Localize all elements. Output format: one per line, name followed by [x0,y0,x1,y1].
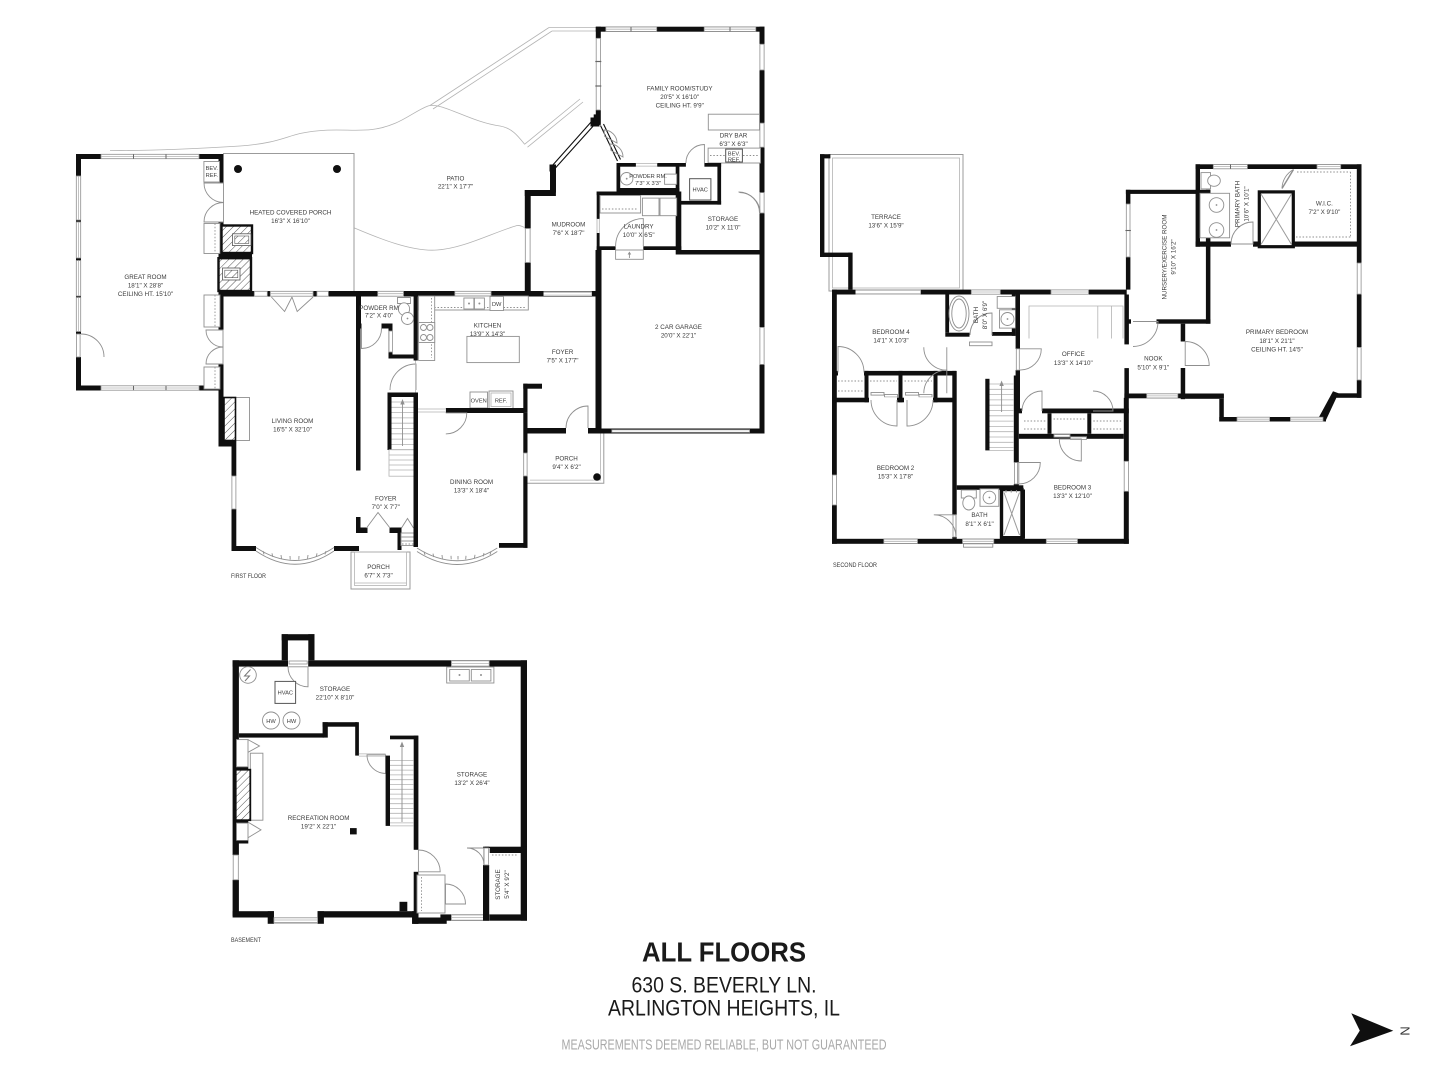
svg-text:7'2" X 4'0": 7'2" X 4'0" [365,313,393,320]
svg-text:REF.: REF. [495,399,508,405]
svg-text:13'3" X 18'4": 13'3" X 18'4" [454,488,489,495]
svg-text:POWDER RM.: POWDER RM. [629,174,667,180]
svg-text:HVAC: HVAC [278,691,293,697]
svg-text:CEILING HT. 15'10": CEILING HT. 15'10" [118,291,173,298]
svg-text:GREAT ROOM: GREAT ROOM [124,274,166,281]
svg-text:HW: HW [287,719,297,725]
svg-text:BASEMENT: BASEMENT [231,937,261,944]
svg-text:N: N [1398,1026,1413,1035]
svg-text:13'6" X 15'9": 13'6" X 15'9" [868,223,903,230]
svg-text:BATH: BATH [973,307,980,323]
svg-text:7'6" X 18'7": 7'6" X 18'7" [553,230,585,237]
svg-text:POWDER RM: POWDER RM [359,305,399,312]
svg-text:13'3" X 12'10": 13'3" X 12'10" [1053,493,1092,500]
svg-text:NOOK: NOOK [1144,356,1163,363]
svg-text:5'10" X 9'1": 5'10" X 9'1" [1137,365,1169,372]
svg-text:BATH: BATH [971,512,987,519]
svg-text:FOYER: FOYER [552,349,574,356]
svg-text:10'2" X 11'0": 10'2" X 11'0" [706,225,741,232]
svg-text:PATIO: PATIO [447,176,465,183]
svg-text:PORCH: PORCH [555,456,578,463]
svg-text:LIVING ROOM: LIVING ROOM [272,418,314,425]
svg-text:ARLINGTON HEIGHTS, IL: ARLINGTON HEIGHTS, IL [608,996,840,1021]
svg-text:10'6" X 10'1": 10'6" X 10'1" [1244,186,1251,221]
svg-text:7'5" X 17'7": 7'5" X 17'7" [547,358,579,365]
svg-text:REF.: REF. [728,157,741,163]
svg-text:SECOND FLOOR: SECOND FLOOR [833,562,877,569]
svg-text:16'3" X 16'10": 16'3" X 16'10" [271,218,310,225]
svg-text:W.I.C.: W.I.C. [1316,201,1333,208]
svg-text:13'9" X 14'3": 13'9" X 14'3" [470,331,505,338]
svg-text:13'3" X 14'10": 13'3" X 14'10" [1054,360,1093,367]
svg-text:BEV.: BEV. [206,166,219,172]
svg-text:8'0" X 6'9": 8'0" X 6'9" [982,301,989,329]
svg-text:CEILING HT. 9'9": CEILING HT. 9'9" [656,103,704,110]
svg-text:STORAGE: STORAGE [495,869,502,899]
svg-text:PORCH: PORCH [367,564,390,571]
svg-text:HEATED COVERED PORCH: HEATED COVERED PORCH [250,210,332,217]
svg-text:PRIMARY BEDROOM: PRIMARY BEDROOM [1246,329,1308,336]
svg-text:6'7" X 7'3": 6'7" X 7'3" [364,573,392,580]
svg-text:7'2" X 9'10": 7'2" X 9'10" [1308,209,1340,216]
svg-text:22'1" X 17'7": 22'1" X 17'7" [438,184,473,191]
svg-text:BEDROOM 4: BEDROOM 4 [872,329,910,336]
svg-text:14'1" X 10'3": 14'1" X 10'3" [873,338,908,345]
svg-text:NURSERY/EXERCISE ROOM: NURSERY/EXERCISE ROOM [1162,215,1169,300]
svg-text:7'3" X 3'3": 7'3" X 3'3" [635,181,661,187]
svg-text:HW: HW [266,719,276,725]
svg-text:18'1" X 28'8": 18'1" X 28'8" [128,283,163,290]
svg-text:19'2" X 22'1": 19'2" X 22'1" [301,824,336,831]
svg-text:9'10" X 16'2": 9'10" X 16'2" [1171,239,1178,274]
svg-text:9'4" X 6'2": 9'4" X 6'2" [552,464,580,471]
svg-text:5'4" X 9'2": 5'4" X 9'2" [504,870,511,898]
svg-text:15'3" X 17'8": 15'3" X 17'8" [878,474,913,481]
svg-text:FOYER: FOYER [375,496,397,503]
svg-text:DW: DW [492,302,502,308]
svg-text:DINING ROOM: DINING ROOM [450,479,493,486]
svg-text:RECREATION ROOM: RECREATION ROOM [288,815,350,822]
svg-text:20'0" X 22'1": 20'0" X 22'1" [661,333,696,340]
svg-text:10'0" X 6'5": 10'0" X 6'5" [623,232,655,239]
svg-text:CEILING HT. 14'5": CEILING HT. 14'5" [1251,347,1303,354]
svg-text:STORAGE: STORAGE [708,216,738,223]
svg-text:OFFICE: OFFICE [1062,351,1085,358]
svg-text:DRY BAR: DRY BAR [720,133,748,140]
svg-text:18'1" X 21'1": 18'1" X 21'1" [1259,338,1294,345]
svg-text:KITCHEN: KITCHEN [474,323,501,330]
svg-text:BEDROOM 3: BEDROOM 3 [1054,485,1092,492]
svg-text:BEDROOM 2: BEDROOM 2 [877,465,915,472]
svg-text:22'10" X 8'10": 22'10" X 8'10" [316,695,355,702]
svg-text:REF.: REF. [206,173,219,179]
svg-text:FIRST FLOOR: FIRST FLOOR [231,573,266,580]
svg-text:ALL FLOORS: ALL FLOORS [642,937,806,968]
svg-text:FAMILY ROOM/STUDY: FAMILY ROOM/STUDY [647,86,714,93]
svg-text:20'5" X 16'10": 20'5" X 16'10" [660,94,699,101]
svg-text:TERRACE: TERRACE [871,214,901,221]
svg-text:MEASUREMENTS DEEMED RELIABLE,: MEASUREMENTS DEEMED RELIABLE, BUT NOT GU… [562,1038,887,1054]
svg-text:OVEN: OVEN [471,399,487,405]
svg-text:MUDROOM: MUDROOM [552,222,586,229]
svg-text:2 CAR GARAGE: 2 CAR GARAGE [655,324,702,331]
svg-text:STORAGE: STORAGE [457,772,487,779]
svg-text:13'2" X 26'4": 13'2" X 26'4" [454,780,489,787]
svg-text:630 S. BEVERLY LN.: 630 S. BEVERLY LN. [632,973,817,998]
svg-text:HVAC: HVAC [693,188,708,194]
svg-text:16'5" X 32'10": 16'5" X 32'10" [273,427,312,434]
svg-text:LAUNDRY: LAUNDRY [624,224,655,231]
svg-text:PRIMARY BATH: PRIMARY BATH [1235,181,1242,227]
svg-text:7'0" X 7'7": 7'0" X 7'7" [372,504,400,511]
svg-text:6'3" X 6'3": 6'3" X 6'3" [719,141,747,148]
svg-text:8'1" X 6'1": 8'1" X 6'1" [965,521,993,528]
svg-text:STORAGE: STORAGE [320,686,350,693]
